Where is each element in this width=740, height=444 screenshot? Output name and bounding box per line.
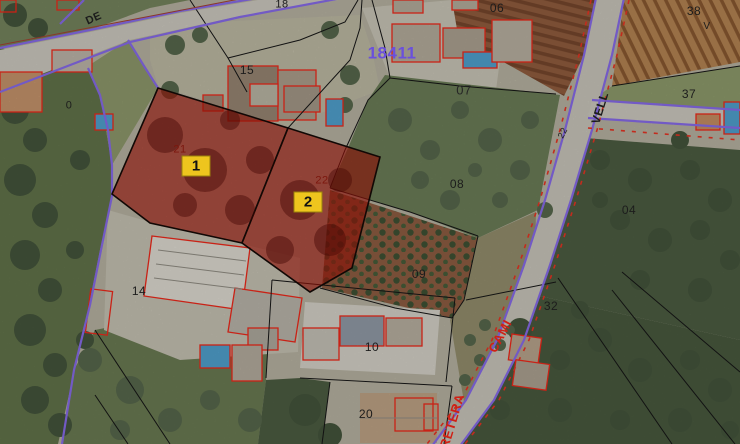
photo-grain-overlay [0,0,740,444]
aerial-map [0,0,740,444]
map-canvas[interactable]: DE18184110638V150737VELL22212208040932CA… [0,0,740,444]
